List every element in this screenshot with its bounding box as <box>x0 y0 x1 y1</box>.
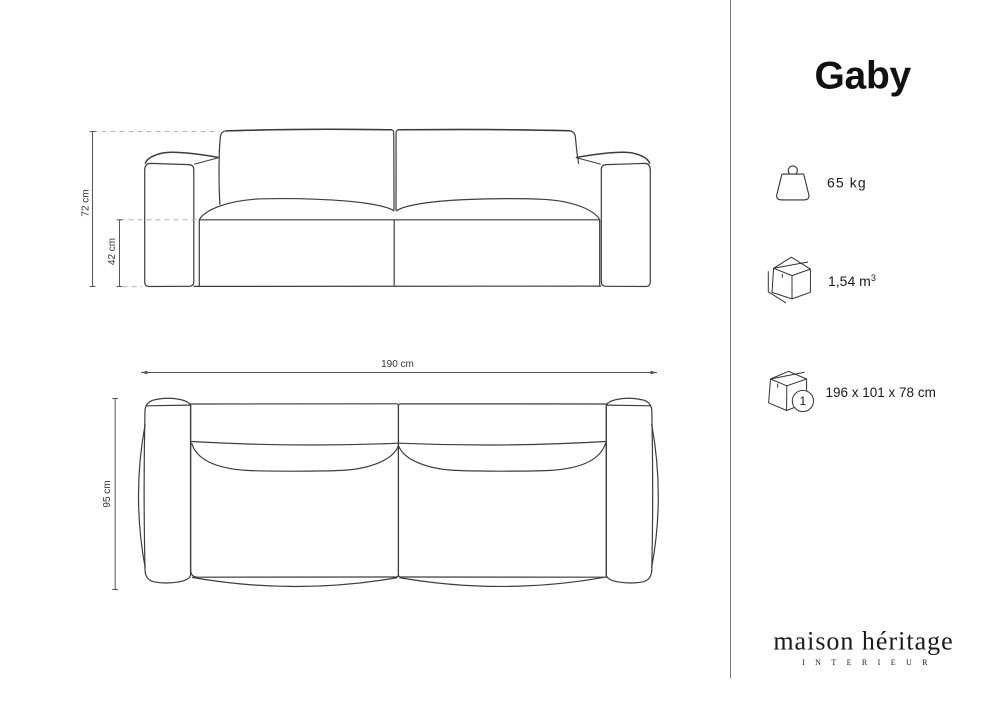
svg-text:65 kg: 65 kg <box>827 175 867 191</box>
svg-text:maison héritage: maison héritage <box>773 627 953 656</box>
svg-text:190 cm: 190 cm <box>381 359 414 370</box>
svg-text:95 cm: 95 cm <box>102 480 113 507</box>
svg-text:INTERIEUR: INTERIEUR <box>802 658 938 667</box>
svg-text:72 cm: 72 cm <box>81 189 92 216</box>
svg-text:196 x 101 x 78 cm: 196 x 101 x 78 cm <box>826 385 936 400</box>
svg-text:1,54 m3: 1,54 m3 <box>828 273 876 289</box>
svg-text:42 cm: 42 cm <box>107 238 118 265</box>
svg-text:1: 1 <box>800 394 807 408</box>
svg-text:Gaby: Gaby <box>815 54 912 97</box>
